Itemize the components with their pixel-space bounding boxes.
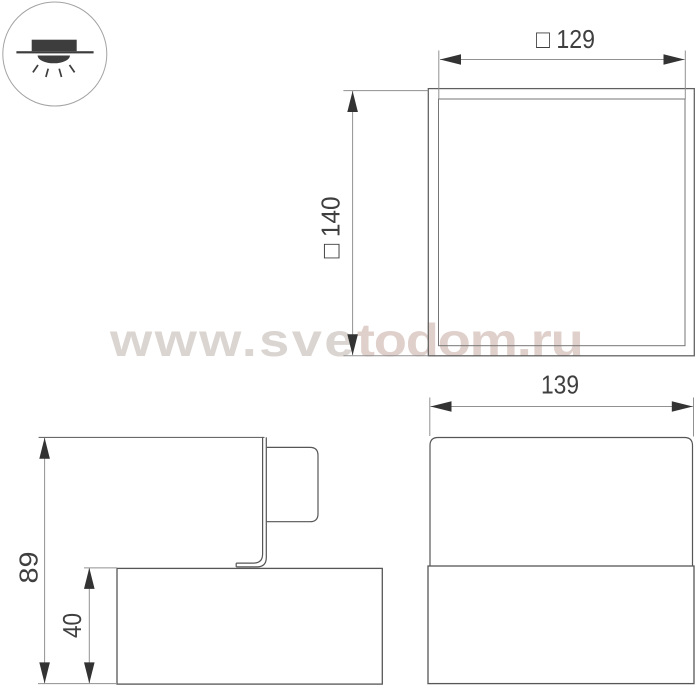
svg-text:□ 129: □ 129: [536, 24, 595, 54]
svg-text:89: 89: [14, 552, 44, 584]
svg-text:139: 139: [541, 370, 579, 400]
svg-text:40: 40: [57, 613, 87, 638]
svg-text:□ 140: □ 140: [316, 197, 346, 259]
